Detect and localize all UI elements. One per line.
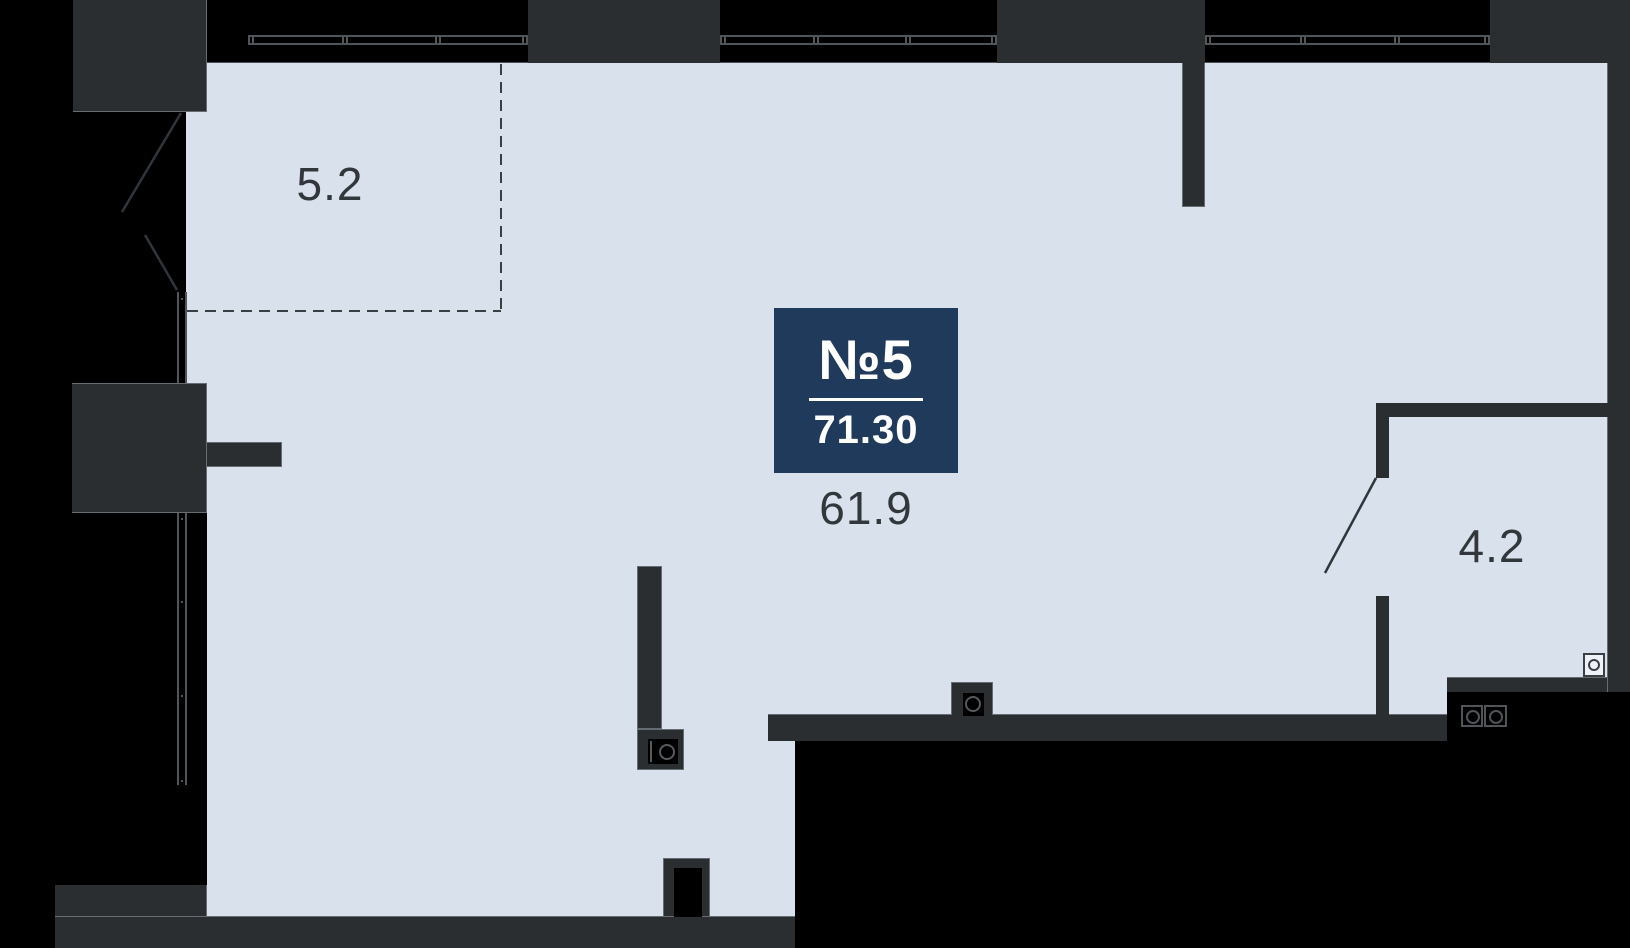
- floor-plan: №5 71.30 61.9 5.2 4.2: [0, 0, 1630, 948]
- bottom-wall-left-band: [55, 916, 795, 948]
- boiler-icon: [648, 739, 678, 764]
- window-mullion: [248, 37, 254, 43]
- burner-circle: [1466, 710, 1480, 724]
- wall-stub-left: [207, 442, 282, 467]
- unit-number: №5: [818, 332, 914, 388]
- unit-total-area: 71.30: [813, 410, 918, 450]
- window-rung: [181, 298, 183, 300]
- boiler-circle: [659, 744, 675, 760]
- wall-stub-top: [1182, 63, 1205, 207]
- shaft-niche-icon: [663, 858, 710, 916]
- sink-circle: [965, 696, 981, 712]
- window-icon: [248, 35, 528, 45]
- sink-icon: [963, 693, 984, 716]
- window-mullion: [1205, 37, 1211, 43]
- left-bottom-block: [142, 785, 207, 885]
- bottom-wall-right: [768, 714, 1447, 741]
- window-mullion: [435, 37, 441, 43]
- structure-block-top-2: [997, 0, 1205, 63]
- window-icon: [1205, 35, 1490, 45]
- window-mullion: [813, 37, 819, 43]
- window-rung: [181, 695, 183, 697]
- burner-circle: [1489, 710, 1503, 724]
- structure-block-top-left: [73, 0, 207, 112]
- outside-bottom-right: [795, 741, 1630, 948]
- window-rung: [181, 601, 183, 603]
- bottom-left-notch: [55, 885, 207, 916]
- balcony-area-label: 5.2: [297, 157, 364, 211]
- window-mullion: [1394, 37, 1400, 43]
- unit-badge[interactable]: №5 71.30: [774, 308, 958, 473]
- shaft-niche-inner: [674, 868, 702, 917]
- kitchen-divider-wall: [637, 566, 662, 729]
- washer-circle: [1588, 659, 1600, 671]
- window-rung: [181, 518, 183, 520]
- top-wall: [200, 0, 1630, 63]
- stove-burners-icon: [1484, 705, 1507, 727]
- structure-block-top-1: [528, 0, 720, 63]
- boiler-line: [650, 741, 652, 762]
- badge-divider: [809, 398, 923, 401]
- sink-fixture: [951, 682, 993, 715]
- washing-machine-icon: [1583, 653, 1605, 677]
- main-room-area-label: 61.9: [819, 481, 913, 535]
- window-rung: [181, 780, 183, 782]
- window-mullion: [342, 37, 348, 43]
- left-wall-inner-strip: [187, 513, 207, 785]
- left-wall-segment: [178, 112, 186, 292]
- window-mullion: [905, 37, 911, 43]
- structure-block-top-right: [1490, 0, 1630, 63]
- door-swing-icon: [122, 113, 181, 290]
- bathroom-area-label: 4.2: [1459, 519, 1526, 573]
- structure-block-left: [72, 383, 207, 513]
- window-mullion: [720, 37, 726, 43]
- window-icon: [720, 35, 997, 45]
- bathroom-top-wall: [1376, 403, 1630, 417]
- kitchen-counter-band: [1447, 692, 1630, 741]
- window-icon-left: [177, 292, 187, 785]
- kitchen-divider-foot: [637, 729, 684, 770]
- bathroom-bottom-wall: [1447, 677, 1630, 692]
- right-wall: [1607, 63, 1630, 692]
- bathroom-door-jamb-bottom: [1376, 596, 1389, 717]
- bathroom-door-jamb-top: [1376, 403, 1389, 478]
- window-mullion: [1300, 37, 1306, 43]
- stove-burners-icon: [1461, 705, 1483, 727]
